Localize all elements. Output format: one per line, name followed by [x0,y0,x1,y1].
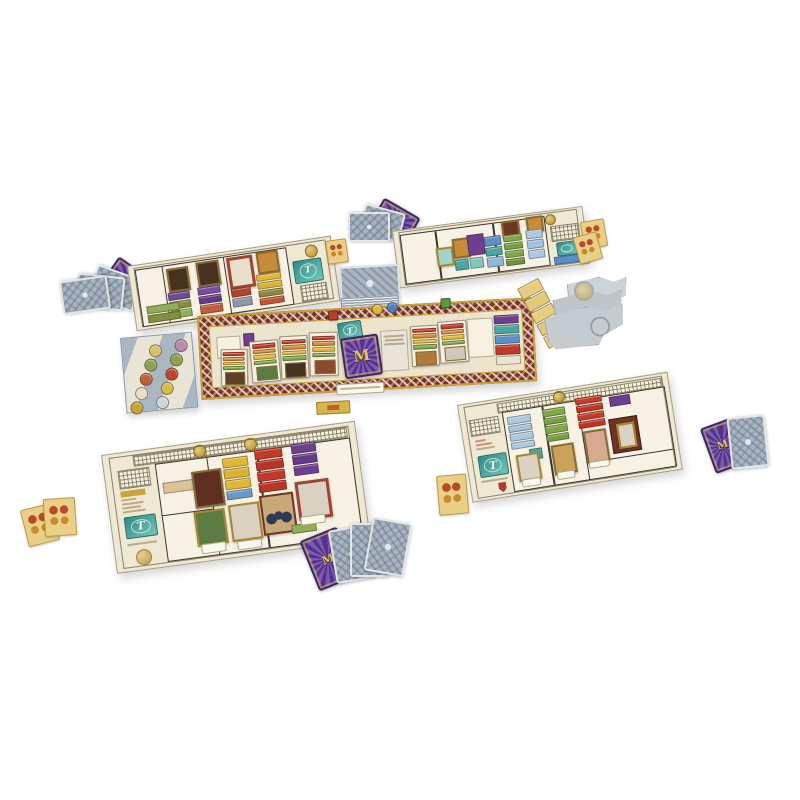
theatre-letter: T [136,520,146,532]
theatre-letter: T [304,266,312,276]
round-token [173,337,189,353]
score-grid [469,415,501,437]
round-token [148,343,164,359]
small-gold-tile [316,400,351,415]
room-tile [493,314,518,325]
room-tile [413,344,437,350]
card-fan-bottom: M [306,522,412,602]
room-tile [494,324,519,335]
room-tile [312,352,335,357]
room-card [437,320,469,364]
card-strips [440,323,465,345]
round-token [129,400,145,416]
player-board-bottom-right: T [457,372,683,503]
punched-hole [588,315,611,338]
room-card [410,324,441,367]
card-painting [314,359,336,374]
room-tile [312,335,335,340]
room-tile [441,340,465,346]
painting [228,501,263,542]
room-tile-stack [574,394,606,429]
small-tan-card [325,238,349,265]
gray-card [348,212,390,242]
room-card [309,331,339,376]
room-tile [469,256,484,269]
room-tile [224,356,246,360]
room-tile [496,355,521,366]
theatre-card: T [123,513,158,539]
gray-card [364,517,413,577]
round-token [154,394,170,410]
score-grid [117,466,152,490]
card-pair-bottom-right: M [705,414,771,476]
tan-card [43,497,78,537]
board-game-photo: T [0,0,800,800]
punchboard-stack [546,277,632,351]
card-painting [444,346,466,362]
right-tile-cluster [493,314,521,366]
round-token [138,371,154,387]
room-tile-stack [290,441,319,476]
room-card [221,348,249,385]
purple-starburst-deck: M [340,333,384,379]
card-painting [256,365,278,381]
room-tile-stack [507,414,535,450]
board-title-script [481,477,508,483]
embossed-seal-icon [135,548,153,566]
card-painting [226,372,246,385]
room-tile [312,341,335,346]
tan-card-pair-left [24,498,82,554]
round-token [134,385,150,401]
painting [226,255,257,290]
square-token [328,310,339,321]
round-punch-token [574,281,594,301]
icon-rows [121,496,151,514]
deck-letter: M [716,439,730,452]
tan-card-single [436,473,469,515]
room-tile [454,258,469,271]
round-token [371,304,383,316]
card-strips [412,328,436,350]
gray-card [726,414,769,470]
room-tile [312,346,335,351]
red-crest-icon [498,482,507,493]
room-tile [223,352,245,356]
room-tile [224,366,246,370]
card-strips [223,352,245,371]
deck-letter: M [352,348,371,365]
gold-seal-icon [304,244,319,259]
text-card [380,329,409,371]
board-title-script [127,540,157,546]
round-token [143,357,159,373]
room-card [249,339,281,383]
painting [196,260,222,288]
round-token [163,366,179,382]
card-strips [252,342,277,365]
painting [616,422,638,449]
room-tile-stack [503,233,526,267]
room-card [279,335,310,379]
room-tile [283,355,307,361]
theatre-card: T [292,257,324,283]
room-tile-stack [256,271,285,305]
room-tile [494,334,519,345]
score-grid [300,281,329,302]
empty-card-slot [467,318,495,359]
room-tile-stack [525,228,546,259]
theatre-letter: T [488,459,498,471]
room-tile-stack [254,447,287,493]
theatre-letter: T [346,326,353,335]
gray-card [59,275,111,315]
market-board-surface: T M [209,309,526,388]
name-label [336,382,385,396]
square-token [441,298,452,309]
round-token [386,302,398,314]
room-tile [495,344,520,355]
card-painting [416,351,438,366]
central-market-board: T M [197,297,537,400]
room-tile-stack [542,407,570,443]
token-tray [120,332,198,414]
maroon-room [608,415,643,454]
painting [191,468,225,509]
room-tile-stack [197,284,223,314]
gold-seal-icon [544,213,556,225]
room-tile [224,361,246,365]
tan-card-pair-right [576,220,612,264]
painting [166,266,192,294]
round-token [159,380,175,396]
card-painting [285,362,307,377]
room-tile [484,235,502,247]
round-token [168,352,184,368]
room-tile-stack [230,286,253,308]
card-strips [282,339,306,361]
card-strips [312,335,336,358]
theatre-card: T [477,452,509,478]
icon-rows [474,437,499,452]
